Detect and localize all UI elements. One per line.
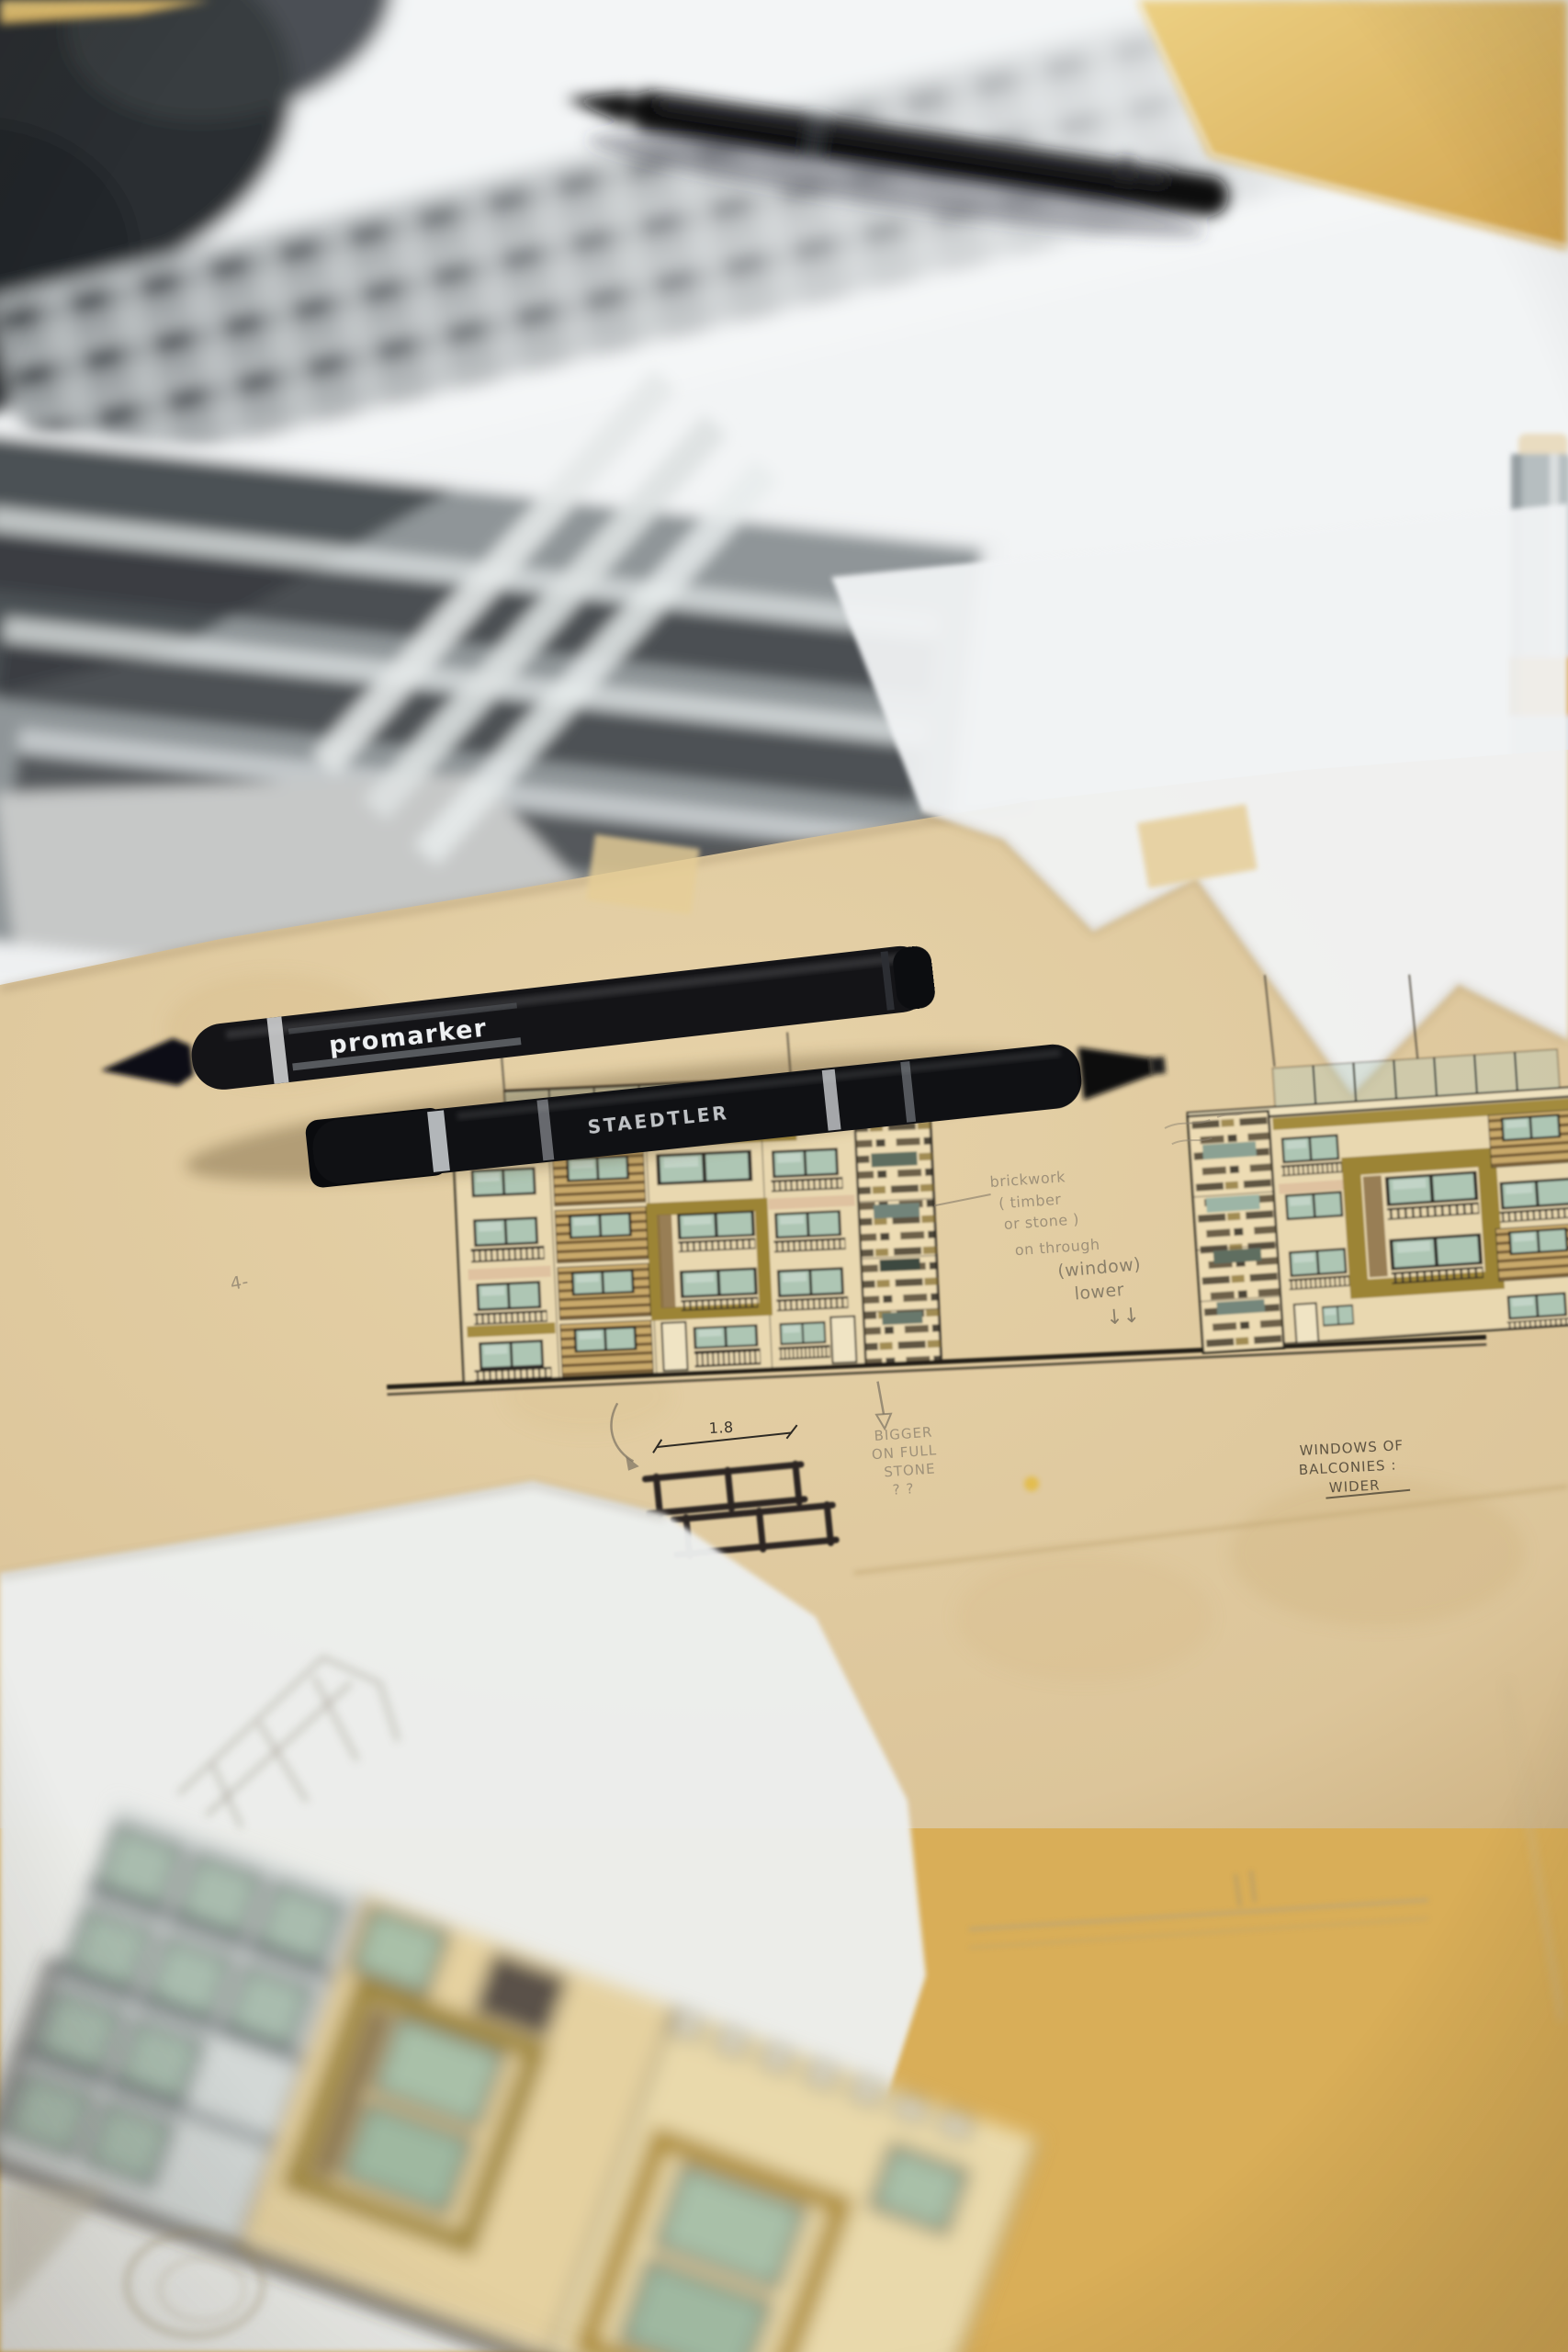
scene-svg: brickwork ( timber or stone ) on through… <box>0 0 1568 2352</box>
desk-photo-scene: brickwork ( timber or stone ) on through… <box>0 0 1568 2352</box>
vignette-overlay <box>0 0 1568 2352</box>
